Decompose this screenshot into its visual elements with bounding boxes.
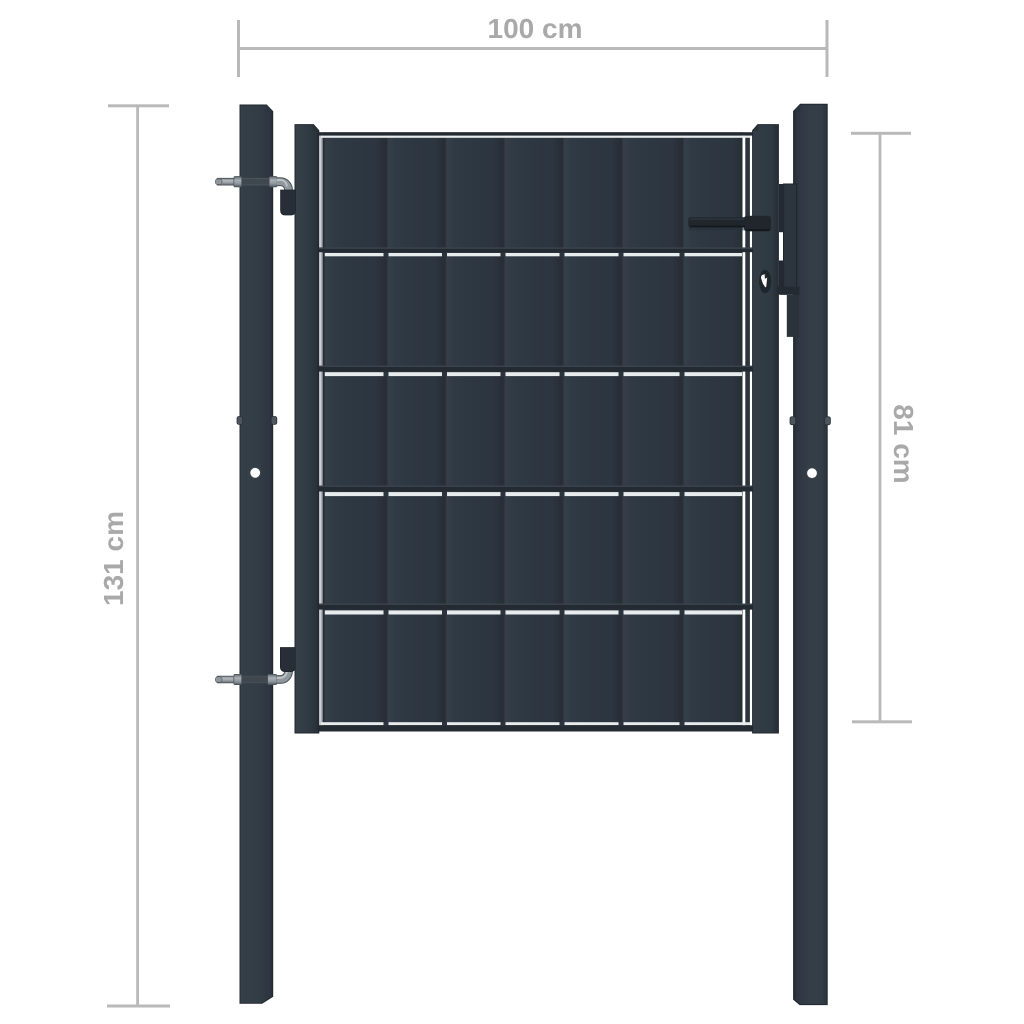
svg-text:81 cm: 81 cm: [888, 404, 919, 483]
svg-text:100 cm: 100 cm: [488, 13, 583, 44]
svg-text:131 cm: 131 cm: [98, 511, 129, 606]
